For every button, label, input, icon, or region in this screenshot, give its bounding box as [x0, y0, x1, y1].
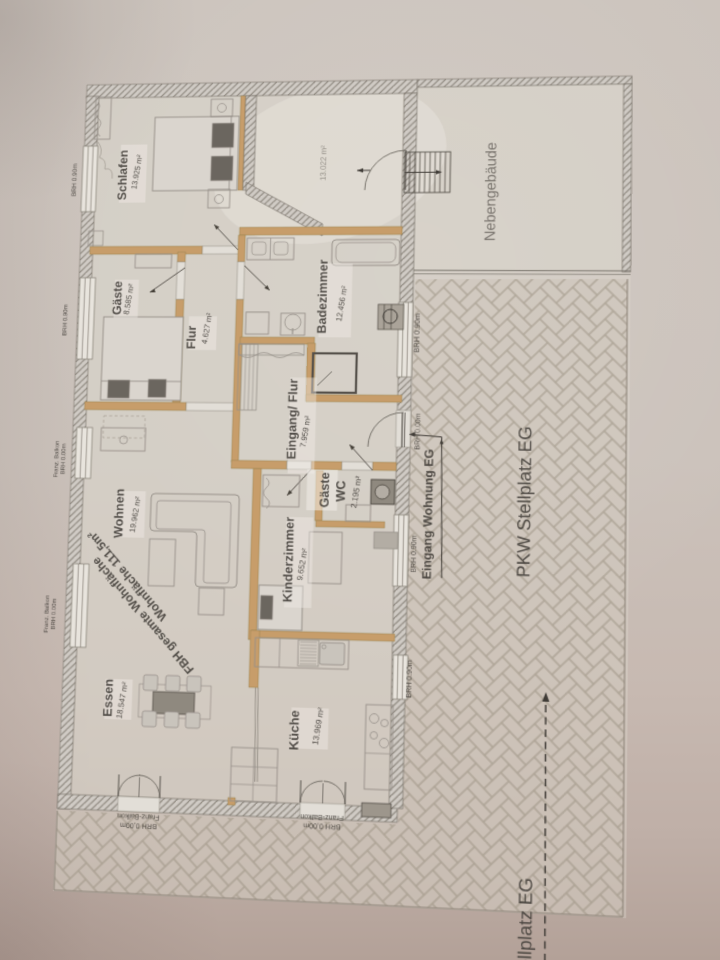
- svg-text:13.022 m²: 13.022 m²: [318, 145, 328, 181]
- svg-text:Küche: Küche: [286, 710, 302, 751]
- svg-text:Essen: Essen: [100, 679, 116, 717]
- svg-text:WC: WC: [333, 480, 349, 502]
- svg-text:BRH 0.00m: BRH 0.00m: [60, 443, 67, 474]
- svg-text:Schlafen: Schlafen: [115, 150, 131, 200]
- svg-text:Eingang Wohnung EG: Eingang Wohnung EG: [421, 449, 437, 580]
- svg-text:Nebengebäude: Nebengebäude: [481, 142, 500, 241]
- svg-text:BRH 0.00m: BRH 0.00m: [414, 413, 422, 450]
- svg-text:Flur: Flur: [184, 325, 199, 349]
- svg-text:Wohnen: Wohnen: [111, 489, 127, 539]
- svg-text:PKW Stellplatz EG: PKW Stellplatz EG: [513, 426, 536, 578]
- svg-text:Kinderzimmer: Kinderzimmer: [280, 516, 297, 602]
- svg-text:BRH 0.90m: BRH 0.90m: [71, 164, 79, 197]
- svg-text:BRH 0.90m: BRH 0.90m: [413, 313, 422, 352]
- svg-text:Stellplatz EG: Stellplatz EG: [514, 877, 537, 960]
- svg-text:Badezimmer: Badezimmer: [314, 259, 331, 333]
- svg-text:BRH 0.00m: BRH 0.00m: [51, 598, 59, 630]
- svg-text:BRH 0,00m: BRH 0,00m: [120, 821, 157, 830]
- svg-text:BRH 0.90m: BRH 0.90m: [406, 659, 414, 698]
- svg-text:BRH 0.90m: BRH 0.90m: [62, 304, 69, 335]
- svg-text:BRH 0,00m: BRH 0,00m: [303, 821, 341, 830]
- svg-text:BRH 0.90m: BRH 0.90m: [410, 535, 418, 573]
- svg-text:Gäste: Gäste: [317, 472, 333, 508]
